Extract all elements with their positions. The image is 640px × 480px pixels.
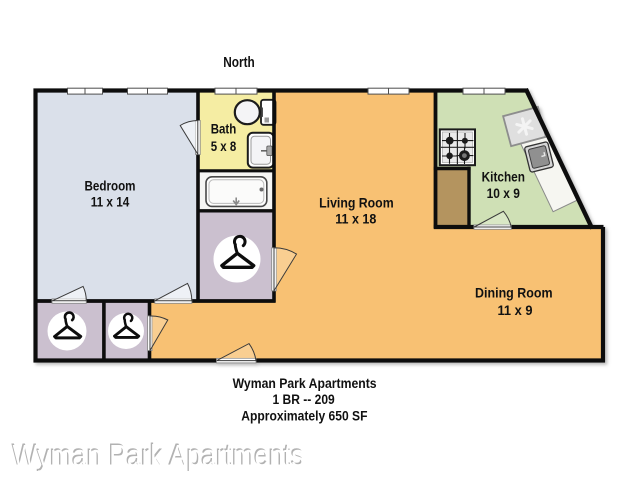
svg-text:11 x 18: 11 x 18 (335, 211, 376, 227)
svg-text:Bedroom: Bedroom (85, 177, 136, 193)
svg-text:5 x 8: 5 x 8 (211, 138, 237, 154)
svg-text:Living Room: Living Room (319, 194, 394, 210)
svg-text:10 x 9: 10 x 9 (487, 185, 520, 201)
svg-text:Bath: Bath (211, 120, 237, 136)
svg-text:1 BR -- 209: 1 BR -- 209 (272, 392, 334, 407)
svg-text:Wyman Park Apartments: Wyman Park Apartments (13, 439, 305, 473)
svg-text:Kitchen: Kitchen (482, 169, 525, 185)
svg-text:11 x 14: 11 x 14 (91, 193, 130, 209)
svg-text:North: North (223, 54, 255, 71)
svg-text:11 x 9: 11 x 9 (498, 302, 533, 318)
svg-text:Dining Room: Dining Room (475, 284, 553, 300)
svg-text:Approximately 650 SF: Approximately 650 SF (241, 409, 367, 424)
svg-text:Wyman Park Apartments: Wyman Park Apartments (233, 376, 377, 391)
